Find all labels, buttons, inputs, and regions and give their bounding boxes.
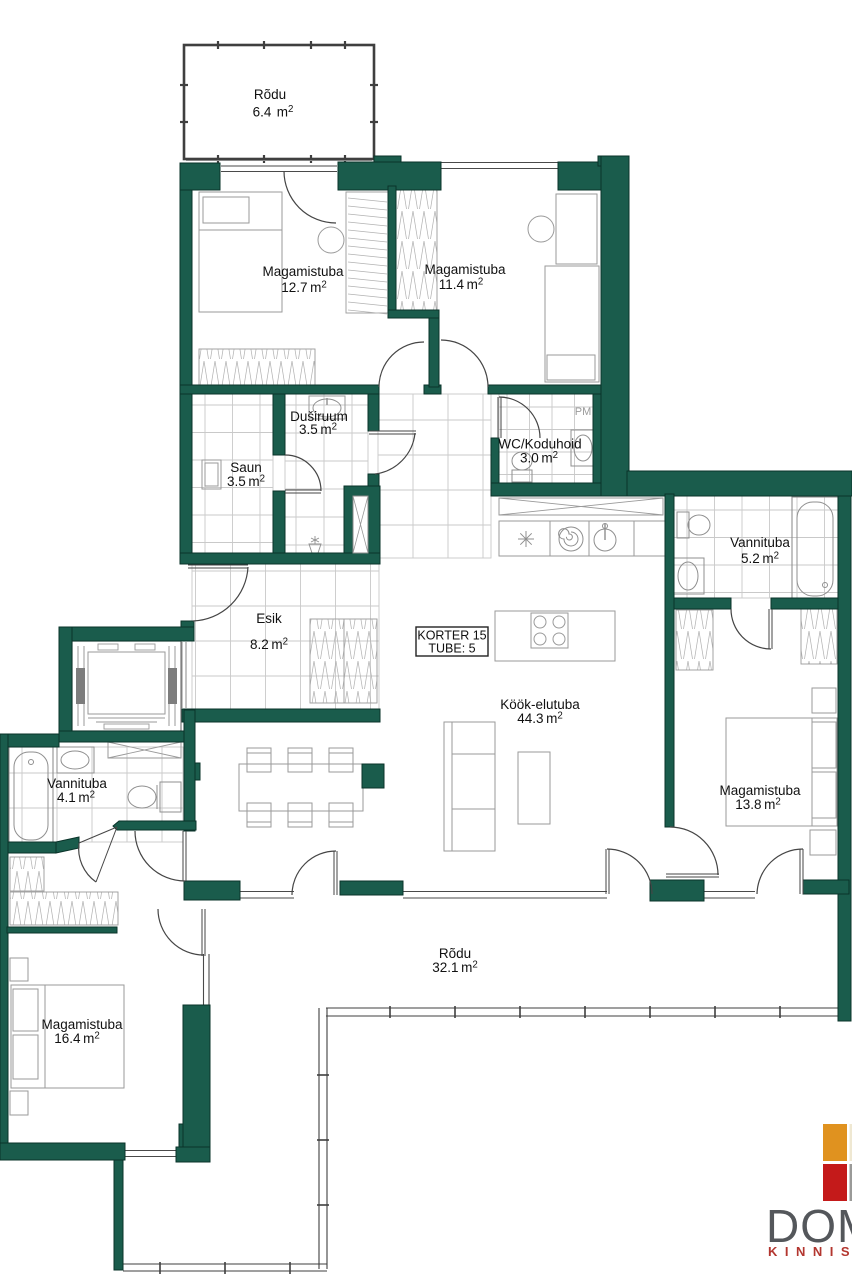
svg-text:TUBE: 5: TUBE: 5 — [428, 642, 475, 656]
svg-text:Magamistuba: Magamistuba — [262, 264, 344, 279]
svg-text:KORTER 15: KORTER 15 — [417, 629, 486, 643]
svg-text:11.4 m2: 11.4 m2 — [439, 277, 484, 293]
svg-text:Köök-elutuba: Köök-elutuba — [500, 697, 580, 712]
svg-text:12.7 m2: 12.7 m2 — [281, 280, 327, 296]
svg-text:5.2 m2: 5.2 m2 — [741, 551, 779, 567]
svg-text:Vannituba: Vannituba — [730, 535, 790, 550]
svg-text:44.3 m2: 44.3 m2 — [517, 711, 563, 727]
svg-text:Rõdu: Rõdu — [254, 87, 286, 102]
svg-text:Rõdu: Rõdu — [439, 946, 471, 961]
svg-text:Esik: Esik — [256, 611, 282, 626]
svg-text:WC/Koduhoid: WC/Koduhoid — [498, 437, 581, 452]
svg-text:PM: PM — [575, 406, 592, 418]
svg-text:Saun: Saun — [230, 460, 262, 475]
svg-text:8.2 m2: 8.2 m2 — [250, 637, 288, 653]
svg-text:16.4 m2: 16.4 m2 — [54, 1031, 100, 1047]
svg-text:4.1 m2: 4.1 m2 — [57, 790, 95, 806]
svg-text:Magamistuba: Magamistuba — [41, 1017, 123, 1032]
svg-text:3.0 m2: 3.0 m2 — [520, 450, 558, 466]
svg-text:32.1 m2: 32.1 m2 — [432, 960, 478, 976]
svg-text:Magamistuba: Magamistuba — [424, 262, 506, 277]
svg-text:13.8 m2: 13.8 m2 — [735, 797, 781, 813]
svg-text:6.4 m2: 6.4 m2 — [253, 104, 294, 120]
svg-text:3.5 m2: 3.5 m2 — [227, 474, 265, 490]
svg-text:Magamistuba: Magamistuba — [719, 783, 801, 798]
svg-text:KINNIS: KINNIS — [768, 1244, 852, 1259]
svg-text:3.5 m2: 3.5 m2 — [299, 422, 337, 438]
svg-text:Vannituba: Vannituba — [47, 776, 107, 791]
